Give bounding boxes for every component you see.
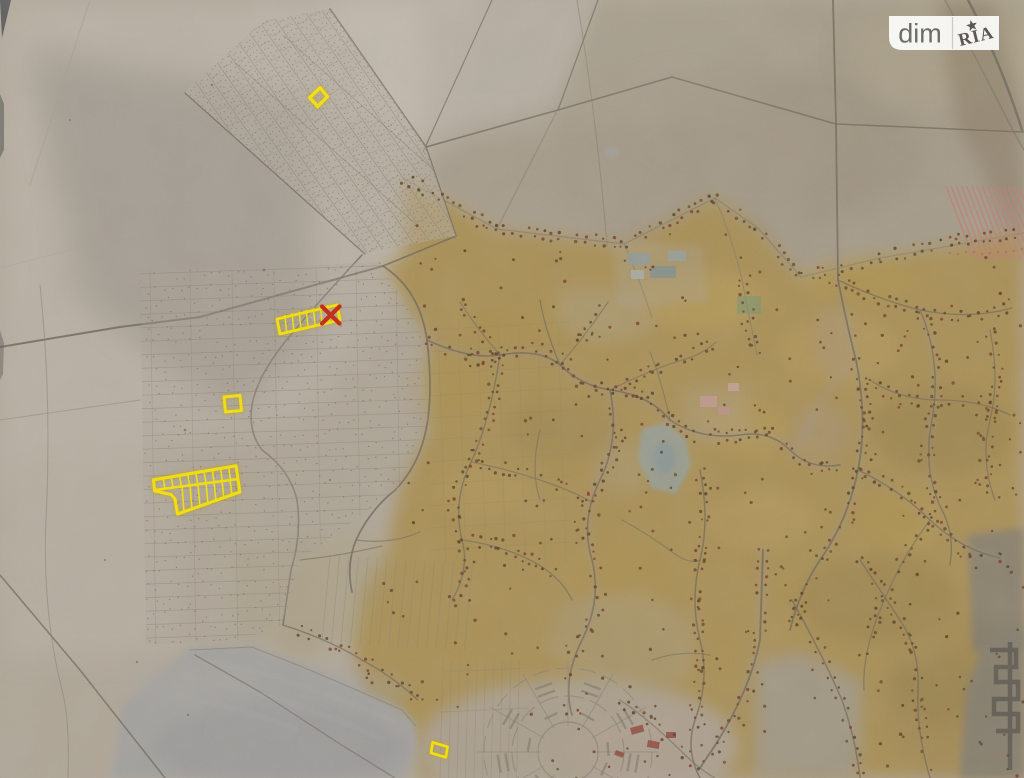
svg-text:dim: dim [898, 19, 942, 49]
